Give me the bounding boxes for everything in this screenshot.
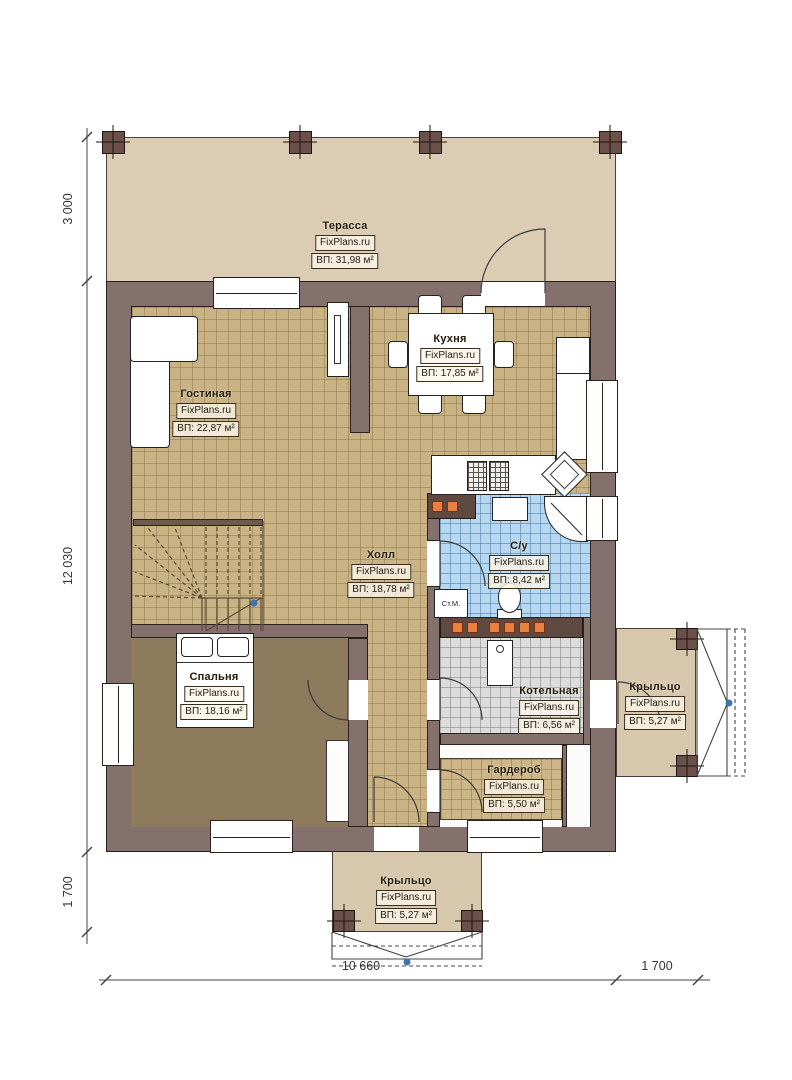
column [676, 628, 698, 650]
room-name: Крыльцо [629, 681, 680, 693]
dim-left-bottom: 1 700 [61, 876, 75, 907]
room-name: Крыльцо [380, 875, 431, 887]
dim-bottom-main: 10 660 [342, 959, 380, 973]
dim-bottom-right: 1 700 [641, 959, 672, 973]
entry-door-opening [374, 827, 419, 851]
column [102, 131, 125, 154]
brand-watermark: FixPlans.ru [184, 686, 244, 702]
brand-watermark: FixPlans.ru [519, 700, 579, 716]
boiler-dial [496, 645, 504, 653]
room-area: ВП: 5,27 м² [375, 908, 437, 924]
room-area: ВП: 18,16 м² [180, 704, 247, 720]
room-area: ВП: 22,87 м² [172, 421, 239, 437]
dining-chair [418, 393, 442, 414]
room-name: Терасса [322, 220, 367, 232]
washing-machine: Ст.М. [434, 589, 468, 618]
room-area: ВП: 5,27 м² [624, 714, 686, 730]
living-window-top [213, 277, 300, 309]
kitchen-corner-cabinet [556, 337, 590, 374]
vent-flue [504, 622, 515, 633]
wall-wardrobe-right [562, 745, 567, 827]
vent-flue [452, 622, 463, 633]
dim-left-top: 3 000 [61, 193, 75, 224]
dining-chair [494, 341, 514, 368]
hall-window-bottom [467, 820, 543, 853]
column [676, 755, 698, 777]
oven [467, 461, 487, 491]
room-name: Спальня [190, 671, 239, 683]
column [461, 910, 483, 932]
pillow [181, 637, 213, 657]
wall-hall-bath-4 [427, 812, 440, 827]
vent-flue [519, 622, 530, 633]
column [419, 131, 442, 154]
pillow [217, 637, 249, 657]
bedroom-window-left [102, 683, 134, 766]
brand-watermark: FixPlans.ru [315, 235, 375, 251]
vent-flue [489, 622, 500, 633]
column [599, 131, 622, 154]
column [333, 910, 355, 932]
brand-watermark: FixPlans.ru [625, 696, 685, 712]
bedroom-wardrobe-cabinet [326, 740, 349, 822]
brand-watermark: FixPlans.ru [420, 348, 480, 364]
column [289, 131, 312, 154]
sofa-chaise [130, 316, 198, 362]
wall-bedroom-right [348, 638, 368, 827]
blanket-line [177, 662, 253, 663]
room-label-porch-bottom: Крыльцо FixPlans.ru ВП: 5,27 м² [375, 875, 437, 924]
room-area: ВП: 8,42 м² [488, 573, 550, 589]
room-label-porch-right: Крыльцо FixPlans.ru ВП: 5,27 м² [624, 681, 686, 730]
room-area: ВП: 17,85 м² [416, 366, 483, 382]
cooktop [489, 461, 509, 491]
vent-flue [467, 622, 478, 633]
dining-chair [462, 393, 486, 414]
bedroom-door-opening [348, 680, 368, 720]
room-label-hall: Холл FixPlans.ru ВП: 18,78 м² [347, 549, 414, 598]
wall-boiler-bottom [440, 733, 585, 745]
room-label-wardrobe: Гардероб FixPlans.ru ВП: 5,50 м² [483, 764, 545, 813]
room-label-living: Гостиная FixPlans.ru ВП: 22,87 м² [172, 388, 239, 437]
vent-flue [534, 622, 545, 633]
room-label-kitchen: Кухня FixPlans.ru ВП: 17,85 м² [416, 333, 483, 382]
bathroom-window-right [586, 496, 618, 541]
room-name: Гостиная [180, 388, 231, 400]
brand-watermark: FixPlans.ru [351, 564, 411, 580]
wall-living-kitchen [350, 306, 370, 433]
brand-watermark: FixPlans.ru [176, 403, 236, 419]
wardrobe-door-opening [427, 770, 440, 812]
room-area: ВП: 18,78 м² [347, 582, 414, 598]
room-area: ВП: 31,98 м² [311, 253, 378, 269]
room-label-bedroom: Спальня FixPlans.ru ВП: 18,16 м² [180, 671, 247, 720]
room-name: С/у [510, 540, 528, 552]
brand-watermark: FixPlans.ru [376, 890, 436, 906]
room-name: Гардероб [487, 764, 541, 776]
room-name: Холл [367, 549, 395, 561]
room-label-bathroom: С/у FixPlans.ru ВП: 8,42 м² [488, 540, 550, 589]
room-label-terrace: Терасса FixPlans.ru ВП: 31,98 м² [311, 220, 378, 269]
vent-wall-boiler [440, 617, 583, 638]
vent-flue [447, 501, 458, 512]
washing-machine-label: Ст.М. [442, 599, 460, 608]
boiler-door-opening [427, 680, 440, 720]
porch-right-steps [697, 629, 745, 776]
dim-left-middle: 12 030 [61, 547, 75, 585]
bathroom-sink [492, 497, 528, 521]
room-label-boiler: Котельная FixPlans.ru ВП: 6,56 м² [518, 685, 580, 734]
stair-stringer [133, 519, 263, 526]
room-area: ВП: 6,56 м² [518, 718, 580, 734]
marker-dot [404, 959, 411, 966]
dining-chair [388, 341, 408, 368]
marker-dot [726, 700, 733, 707]
room-name: Котельная [519, 685, 578, 697]
room-area: ВП: 5,50 м² [483, 797, 545, 813]
room-name: Кухня [433, 333, 466, 345]
vent-wall-kitchen [427, 493, 476, 519]
kitchen-window-right [586, 380, 618, 473]
vent-flue [432, 501, 443, 512]
wall-hall-bath-3 [427, 720, 440, 770]
brand-watermark: FixPlans.ru [489, 555, 549, 571]
porch-right-door-opening [590, 680, 616, 728]
tv-panel [334, 315, 341, 364]
bedroom-window-bottom [210, 820, 293, 853]
floor-plan: Ст.М. [0, 0, 792, 1080]
terrace-door-opening [481, 282, 545, 306]
bathroom-door-opening [427, 541, 440, 586]
brand-watermark: FixPlans.ru [484, 779, 544, 795]
